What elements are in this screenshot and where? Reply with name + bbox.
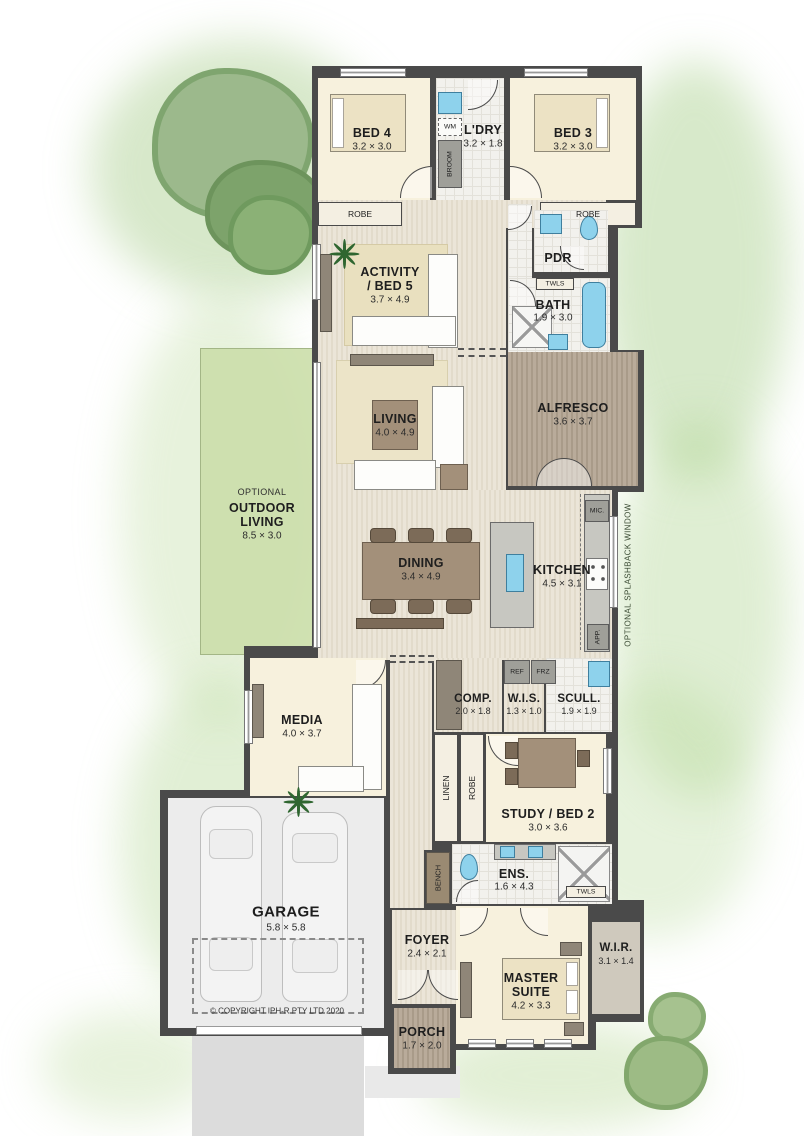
living-sofa-vertical — [432, 386, 464, 468]
bath-basin-icon — [548, 334, 568, 350]
label-garage: GARAGE — [252, 904, 320, 921]
hall-central — [390, 658, 432, 850]
dim-wir: 3.1 × 1.4 — [598, 956, 633, 966]
label-foyer: FOYER — [405, 933, 450, 947]
dining-buffet — [356, 618, 444, 629]
label-scull: SCULL. — [557, 693, 600, 705]
dim-porch: 1.7 × 2.0 — [402, 1041, 441, 1052]
dim-dining: 3.4 × 4.9 — [401, 572, 440, 583]
dim-ldry: 3.2 × 1.8 — [463, 139, 502, 150]
dim-study: 3.0 × 3.6 — [528, 823, 567, 834]
label-mic: MIC. — [590, 508, 604, 515]
dining-chair — [408, 528, 434, 543]
label-broom: BROOM — [447, 151, 454, 177]
label-study: STUDY / BED 2 — [501, 807, 594, 821]
dim-garage: 5.8 × 5.8 — [266, 923, 305, 934]
window-master-1 — [468, 1039, 496, 1048]
study-desk — [518, 738, 576, 788]
bed4-pillow — [332, 98, 344, 148]
label-robe-bed4: ROBE — [348, 209, 372, 219]
window-bed3 — [524, 68, 588, 77]
dining-chair — [370, 599, 396, 614]
dim-alfresco: 3.6 × 3.7 — [553, 417, 592, 428]
dim-foyer: 2.4 × 2.1 — [407, 949, 446, 960]
outdoor-living-label-2: LIVING — [240, 515, 283, 529]
label-activity-1: ACTIVITY — [360, 265, 419, 279]
floor-plan-canvas: OPTIONAL OUTDOOR LIVING 8.5 × 3.0 — [0, 0, 804, 1136]
bush-bottom-right-large — [624, 1036, 708, 1110]
potted-palm-icon — [326, 222, 360, 256]
dim-living: 4.0 × 4.9 — [375, 428, 414, 439]
tree-small-lobe — [228, 195, 314, 275]
dining-chair — [408, 599, 434, 614]
master-dresser — [564, 1022, 584, 1036]
label-porch: PORCH — [399, 1025, 446, 1039]
label-living: LIVING — [373, 412, 416, 426]
media-cabinet — [252, 684, 264, 738]
bathtub-icon — [582, 282, 606, 348]
ens-toilet-icon — [460, 854, 478, 880]
study-chair — [577, 750, 590, 767]
label-twls-ens: TWLS — [577, 889, 596, 896]
living-sofa-horizontal — [354, 460, 436, 490]
copyright-text: © COPYRIGHT IPH-R PTY LTD 2020 — [210, 1007, 344, 1016]
label-activity-2: / BED 5 — [367, 279, 413, 293]
label-alfresco: ALFRESCO — [537, 401, 608, 415]
dim-scull: 1.9 × 1.9 — [561, 706, 596, 716]
window-study — [603, 748, 612, 794]
dim-bed4: 3.2 × 3.0 — [352, 142, 391, 153]
window-master-3 — [544, 1039, 572, 1048]
pdr-toilet-icon — [580, 216, 598, 240]
master-dresser — [560, 942, 582, 956]
label-media: MEDIA — [281, 713, 323, 727]
label-linen: LINEN — [441, 775, 451, 800]
study-chair — [505, 742, 518, 759]
dim-comp: 2.0 × 1.8 — [455, 706, 490, 716]
label-pdr: PDR — [544, 251, 571, 265]
garage-door-opening — [196, 1026, 362, 1035]
dim-media: 4.0 × 3.7 — [282, 729, 321, 740]
dim-wis: 1.3 × 1.0 — [506, 706, 541, 716]
study-chair — [505, 768, 518, 785]
tv-unit — [350, 354, 434, 366]
pdr-basin-icon — [540, 214, 562, 234]
outdoor-living-pre-label: OPTIONAL — [238, 487, 287, 497]
activity-sideboard — [320, 254, 332, 332]
master-pillow — [566, 962, 578, 986]
room-wir — [592, 922, 640, 1014]
garage-door-dashed-zone — [192, 938, 364, 1014]
opening-activity-living — [458, 348, 506, 357]
window-wall-outdoor-living — [313, 362, 321, 648]
label-master-2: SUITE — [512, 985, 550, 999]
dim-kitchen: 4.5 × 3.1 — [542, 579, 581, 590]
label-dining: DINING — [398, 556, 444, 570]
master-pillow — [566, 990, 578, 1014]
label-twls-bath: TWLS — [546, 281, 565, 288]
label-comp: COMP. — [454, 693, 492, 705]
label-bed3: BED 3 — [554, 126, 592, 140]
label-frz: FRZ — [536, 669, 549, 676]
dim-bath: 1.9 × 3.0 — [533, 313, 572, 324]
outdoor-living-dim: 8.5 × 3.0 — [242, 531, 281, 542]
outdoor-living-label-1: OUTDOOR — [229, 501, 295, 515]
label-robe-bed3: ROBE — [576, 209, 600, 219]
dining-chair — [446, 528, 472, 543]
window-master-2 — [506, 1039, 534, 1048]
label-bath: BATH — [536, 298, 571, 312]
master-cabinet — [460, 962, 472, 1018]
label-ref: REF — [510, 669, 524, 676]
label-kitchen: KITCHEN — [533, 563, 591, 577]
label-bed4: BED 4 — [353, 126, 391, 140]
living-armchair — [440, 464, 468, 490]
hall-south — [390, 850, 424, 908]
label-app: APP. — [595, 630, 602, 645]
dining-chair — [370, 528, 396, 543]
label-splashback-note: OPTIONAL SPLASHBACK WINDOW — [624, 503, 633, 646]
dim-master: 4.2 × 3.3 — [511, 1001, 550, 1012]
dining-chair — [446, 599, 472, 614]
ens-basin-icon — [528, 846, 543, 858]
driveway — [192, 1034, 364, 1136]
label-ens: ENS. — [499, 867, 529, 881]
ens-basin-icon — [500, 846, 515, 858]
dim-ens: 1.6 × 4.3 — [494, 882, 533, 893]
label-ldry: L'DRY — [464, 123, 502, 137]
label-wis: W.I.S. — [508, 693, 540, 705]
dim-bed3: 3.2 × 3.0 — [553, 142, 592, 153]
label-master-1: MASTER — [504, 971, 559, 985]
label-robe-hall: ROBE — [467, 776, 477, 800]
label-wm: WM — [444, 124, 456, 131]
window-bed4 — [340, 68, 406, 77]
washing-machine-icon — [438, 92, 462, 114]
activity-sofa-horizontal — [352, 316, 456, 346]
label-bench: BENCH — [434, 865, 443, 891]
scullery-sink-icon — [588, 661, 610, 687]
dim-activity: 3.7 × 4.9 — [370, 295, 409, 306]
bed3-pillow — [596, 98, 608, 148]
window-splashback — [609, 516, 618, 608]
potted-palm-icon — [280, 770, 314, 804]
label-wir: W.I.R. — [599, 942, 632, 954]
opening-hall-media — [390, 655, 434, 663]
island-sink-icon — [506, 554, 524, 592]
